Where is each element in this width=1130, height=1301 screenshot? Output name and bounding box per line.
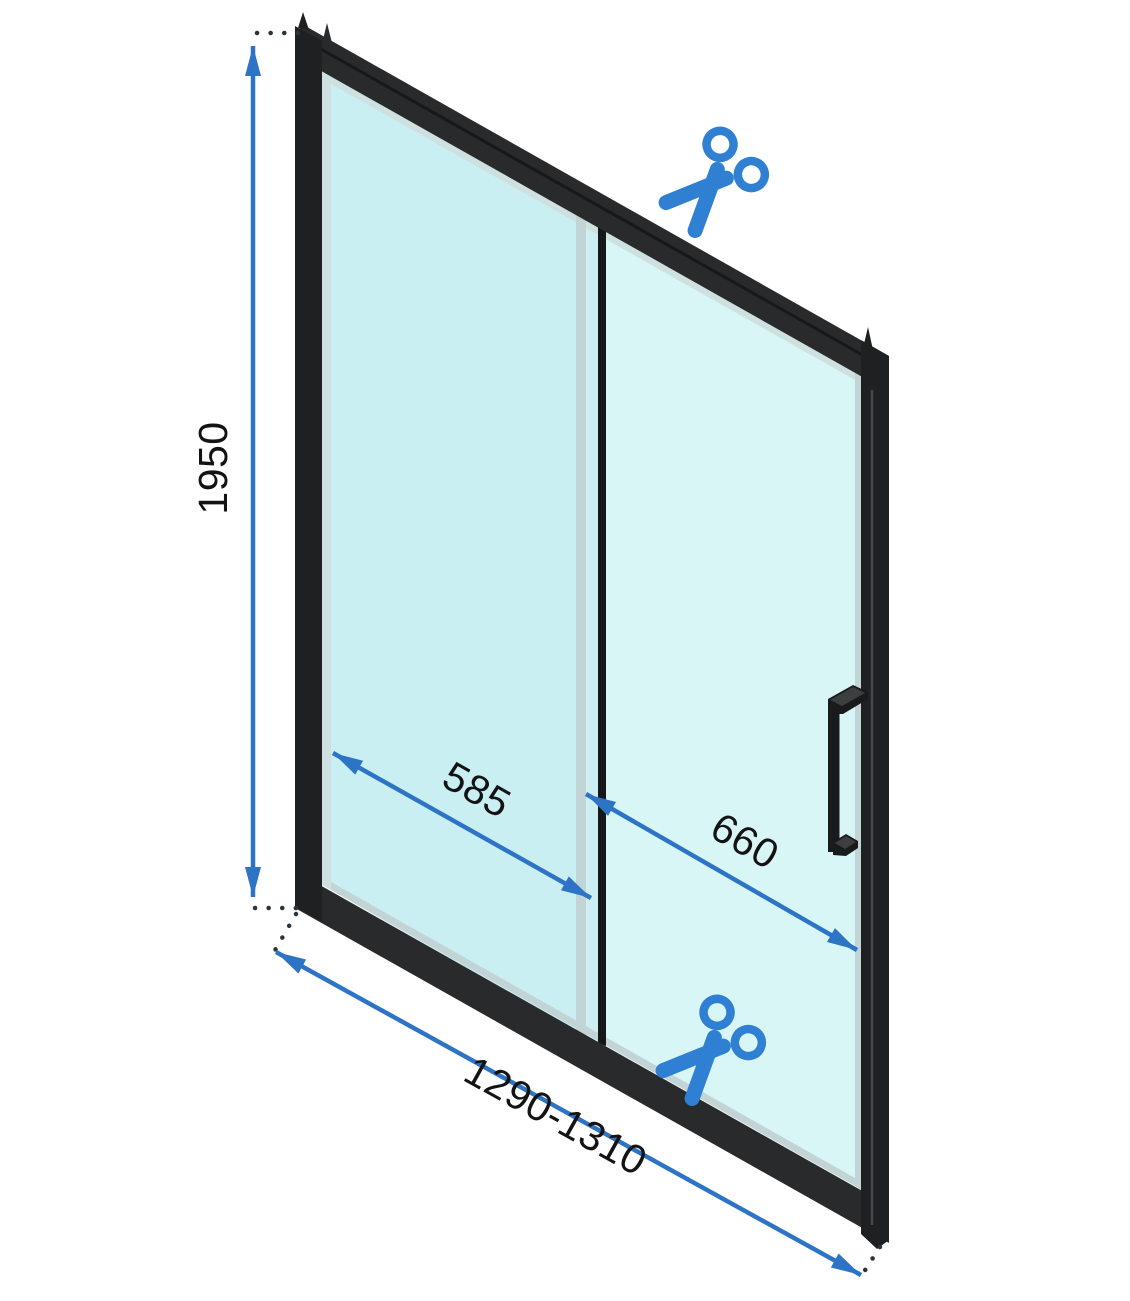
frame-left-tab-2 [322, 23, 333, 47]
diagram-canvas: 1950 585 660 1290-1310 [0, 0, 1130, 1301]
frame-left-tab-1 [298, 12, 309, 30]
frame-right-tab [863, 327, 873, 350]
glass-edge-left [322, 71, 331, 890]
dimension-height: 1950 [190, 33, 301, 908]
handle-bar [828, 706, 840, 852]
glass-edge-right [855, 372, 861, 1190]
frame-right-profile [861, 340, 889, 1249]
extension-dots-bottom-left [274, 914, 296, 952]
shower-door-dimension-diagram: 1950 585 660 1290-1310 [0, 0, 1130, 1301]
fixed-panel-edge [576, 214, 586, 1037]
door-leading-edge [598, 226, 606, 1046]
frame-left-profile [295, 26, 322, 922]
dimension-label-height: 1950 [190, 421, 236, 514]
extension-dots-bottom-right [860, 1247, 880, 1278]
glass-panel-overlap [586, 220, 598, 1043]
glass-panel-left [331, 76, 576, 1031]
glass-panel-right [606, 231, 855, 1186]
